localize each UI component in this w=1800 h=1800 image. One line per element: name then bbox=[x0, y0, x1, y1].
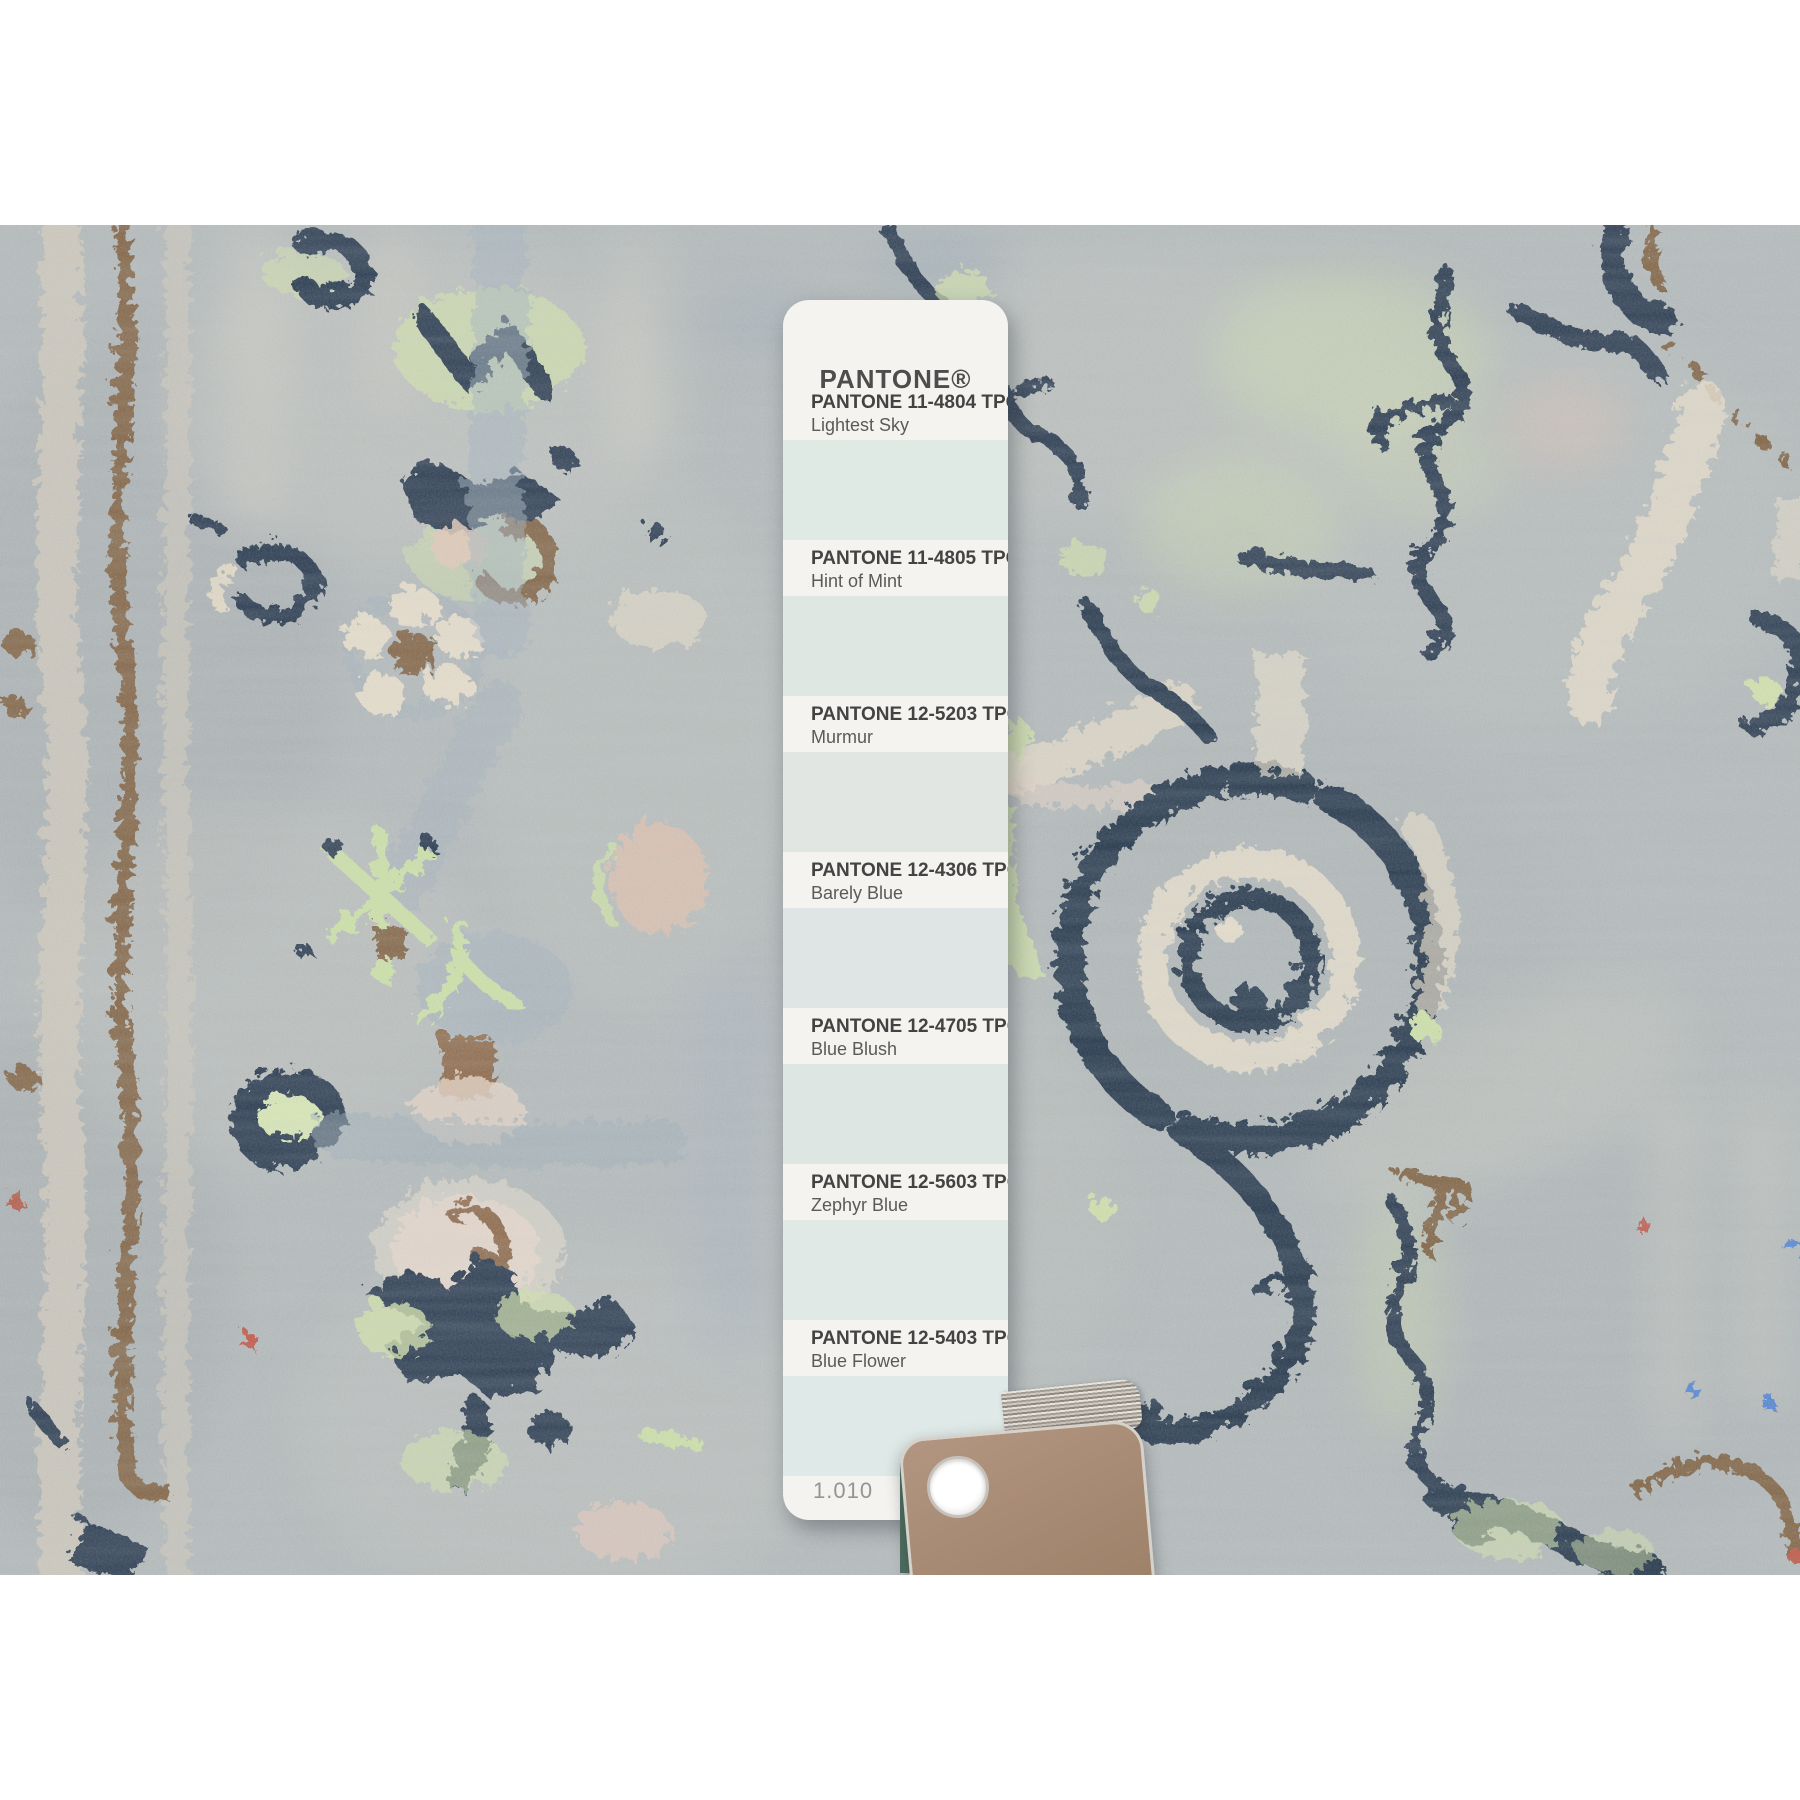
rug-photo: PANTONE® PANTONE 11-4804 TPG Lightest Sk… bbox=[0, 225, 1800, 1575]
swatch-name: Lightest Sky bbox=[811, 414, 1008, 436]
swatch-code: PANTONE 11-4805 TPG bbox=[811, 547, 1008, 570]
swatch-section: PANTONE 12-5203 TPG Murmur bbox=[783, 696, 1008, 852]
swatch-name: Zephyr Blue bbox=[811, 1194, 1008, 1216]
pantone-logo: PANTONE® bbox=[783, 300, 1008, 384]
swatch-section: PANTONE 11-4805 TPG Hint of Mint bbox=[783, 540, 1008, 696]
swatch-color bbox=[783, 752, 1008, 852]
swatch-code: PANTONE 12-5403 TPG bbox=[811, 1327, 1008, 1350]
page: PANTONE® PANTONE 11-4804 TPG Lightest Sk… bbox=[0, 0, 1800, 1800]
swatch-name: Hint of Mint bbox=[811, 570, 1008, 592]
swatch-color bbox=[783, 1064, 1008, 1164]
swatch-code: PANTONE 11-4804 TPG bbox=[811, 391, 1008, 414]
swatch-name: Barely Blue bbox=[811, 882, 1008, 904]
swatch-color bbox=[783, 596, 1008, 696]
swatch-section: PANTONE 12-5603 TPG Zephyr Blue bbox=[783, 1164, 1008, 1320]
swatch-code: PANTONE 12-5203 TPG bbox=[811, 703, 1008, 726]
swatch-section: PANTONE 11-4804 TPG Lightest Sky bbox=[783, 384, 1008, 540]
fan-deck-rivet-hole bbox=[927, 1456, 989, 1518]
swatch-name: Blue Flower bbox=[811, 1350, 1008, 1372]
swatch-section: PANTONE 12-4705 TPG Blue Blush bbox=[783, 1008, 1008, 1164]
swatch-name: Murmur bbox=[811, 726, 1008, 748]
swatch-section: PANTONE 12-4306 TPG Barely Blue bbox=[783, 852, 1008, 1008]
swatch-code: PANTONE 12-4306 TPG bbox=[811, 859, 1008, 882]
swatch-name: Blue Blush bbox=[811, 1038, 1008, 1060]
pantone-strip: PANTONE® PANTONE 11-4804 TPG Lightest Sk… bbox=[783, 300, 1008, 1520]
pantone-fan-deck bbox=[888, 1385, 1188, 1575]
swatch-color bbox=[783, 440, 1008, 540]
swatch-color bbox=[783, 908, 1008, 1008]
swatch-color bbox=[783, 1220, 1008, 1320]
swatch-code: PANTONE 12-5603 TPG bbox=[811, 1171, 1008, 1194]
swatch-code: PANTONE 12-4705 TPG bbox=[811, 1015, 1008, 1038]
strip-page-number: 1.010 bbox=[813, 1478, 873, 1504]
